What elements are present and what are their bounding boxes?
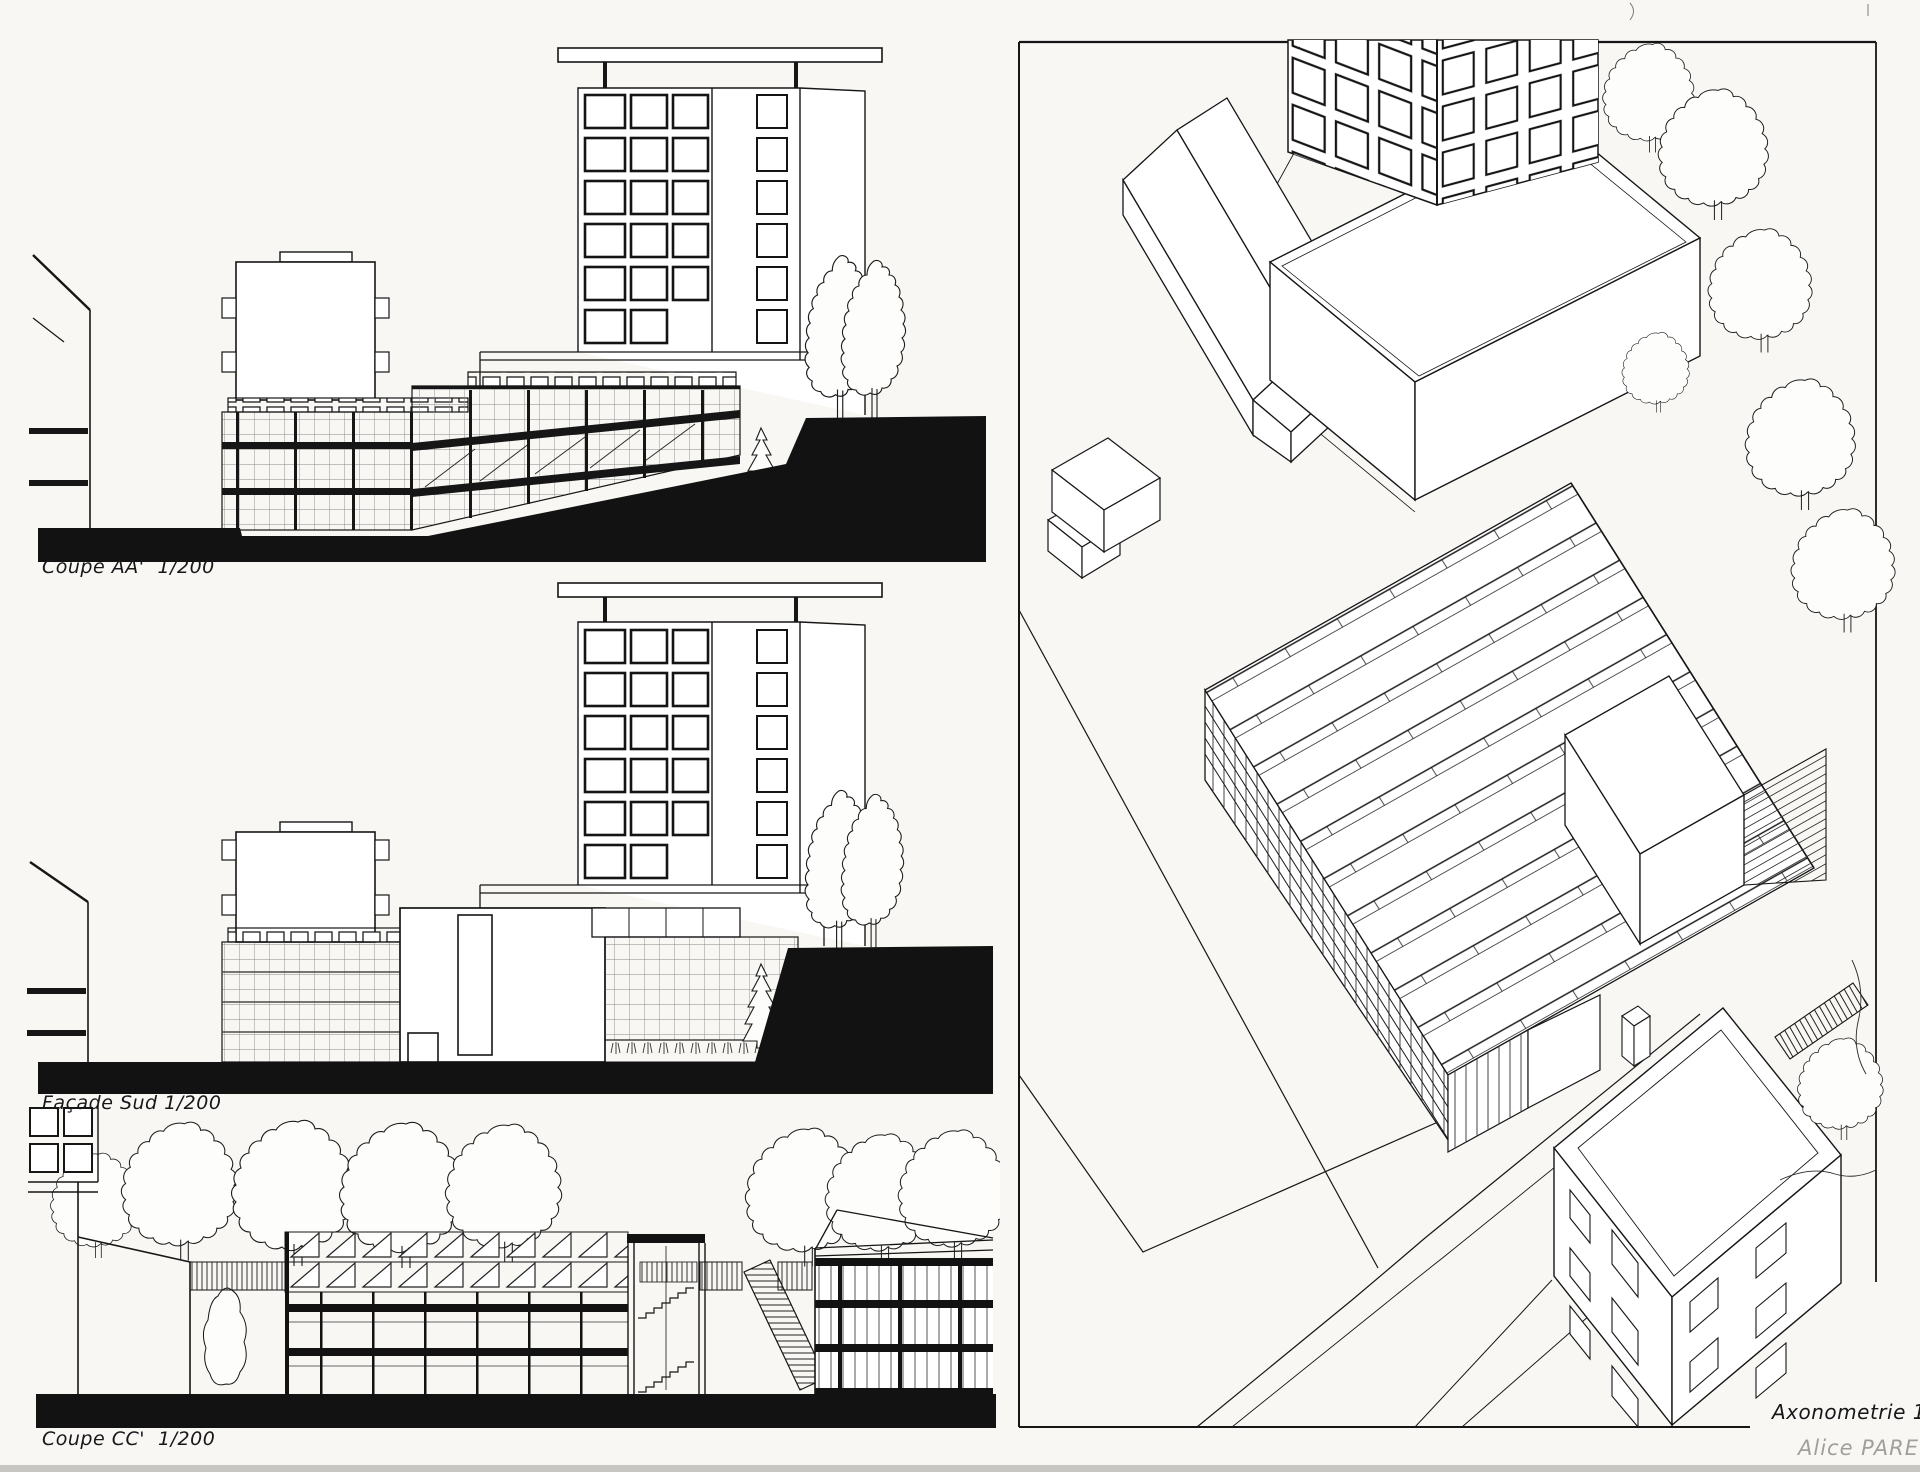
neighbour-building-cut xyxy=(29,255,90,528)
facade-sud-drawing xyxy=(0,575,1000,1105)
small-building-left xyxy=(222,252,389,400)
ground-poche xyxy=(36,1394,996,1428)
axonometrie-drawing xyxy=(1000,0,1920,1472)
coupe-aa-drawing xyxy=(0,0,1000,575)
facade-sud-label: Façade Sud 1/200 xyxy=(42,1092,221,1114)
signature: Alice PARET xyxy=(1798,1436,1920,1460)
center-wall xyxy=(400,908,605,1062)
small-building-left xyxy=(222,822,389,942)
coupe-cc-label: Coupe CC' 1/200 xyxy=(42,1428,215,1450)
small-boxes xyxy=(1048,438,1160,578)
coupe-cc-drawing xyxy=(0,1105,1000,1465)
drawing-sheet: Coupe AA' 1/200 Façade Sud 1/200 Coupe C… xyxy=(0,0,1920,1472)
axonometrie-label: Axonometrie 1/200 xyxy=(1772,1400,1920,1424)
stair-core xyxy=(627,1234,705,1395)
scan-edge xyxy=(0,1465,1920,1472)
stone xyxy=(203,1288,246,1385)
clerestory-band-right xyxy=(468,372,736,386)
neighbour-building-cut xyxy=(27,862,88,1062)
coupe-aa-label: Coupe AA' 1/200 xyxy=(42,556,215,578)
clerestory-band-left xyxy=(228,928,412,942)
glazed-end-wall xyxy=(1744,749,1826,885)
chimney xyxy=(1622,1006,1650,1066)
section-main-building xyxy=(285,1232,628,1395)
